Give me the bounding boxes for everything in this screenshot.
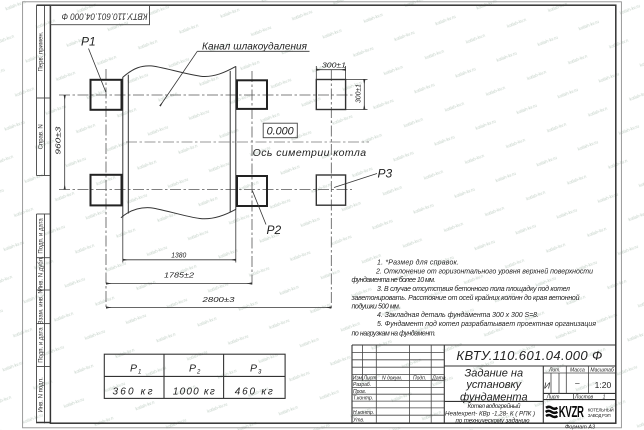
svg-text:Масса: Масса	[570, 367, 585, 373]
svg-text:Т.контр.: Т.контр.	[353, 396, 373, 402]
svg-text:2: 2	[196, 370, 201, 376]
svg-text:Изм.Лист: Изм.Лист	[353, 375, 377, 381]
svg-text:1000 кг: 1000 кг	[173, 386, 215, 397]
svg-text:Взам. инв. N: Взам. инв. N	[38, 289, 44, 324]
svg-text:заветонировать. Расстояние от: заветонировать. Расстояние от осей крайн…	[351, 294, 580, 302]
svg-text:3. В случае отсутствия бетонно: 3. В случае отсутствия бетонного пола пл…	[377, 285, 570, 293]
svg-text:Н.контр.: Н.контр.	[353, 410, 374, 416]
svg-text:Инв. N дубл.: Инв. N дубл.	[38, 256, 44, 291]
svg-text:Котел водогрейный: Котел водогрейный	[468, 403, 522, 410]
svg-text:Лит.: Лит.	[548, 367, 561, 373]
svg-text:Перв. примен.: Перв. примен.	[38, 31, 44, 71]
svg-text:КВТУ.110.601.04.000 Ф: КВТУ.110.601.04.000 Ф	[62, 12, 148, 22]
svg-text:P3: P3	[378, 167, 393, 181]
svg-text:фундамента не более 10 мм.: фундамента не более 10 мм.	[352, 276, 436, 284]
svg-text:P1: P1	[81, 35, 96, 49]
svg-text:установку: установку	[465, 379, 522, 391]
svg-text:КВТУ.110.601.04.000 Ф: КВТУ.110.601.04.000 Ф	[456, 348, 602, 363]
svg-text:4. Закладная деталь фундамента: 4. Закладная деталь фундамента 300 x 300…	[377, 311, 539, 319]
svg-text:Подп. и дата: Подп. и дата	[38, 218, 44, 254]
svg-text:Задание на: Задание на	[465, 368, 524, 380]
svg-text:P: P	[130, 363, 137, 375]
svg-text:Инв. N подл.: Инв. N подл.	[38, 377, 44, 413]
svg-text:по техническому заданию: по техническому заданию	[456, 417, 530, 424]
svg-text:КОТЕЛЬНЫЙ: КОТЕЛЬНЫЙ	[588, 407, 614, 412]
svg-text:Формат А3: Формат А3	[565, 424, 596, 430]
svg-text:Масштаб: Масштаб	[590, 367, 614, 373]
svg-text:Справ. N: Справ. N	[38, 124, 44, 149]
svg-text:по нагрузкам на фундамент.: по нагрузкам на фундамент.	[352, 329, 437, 337]
svg-text:N докум.: N докум.	[382, 375, 402, 381]
svg-text:960±3: 960±3	[53, 126, 62, 155]
svg-text:Листов: Листов	[574, 394, 594, 400]
svg-text:Дата: Дата	[431, 375, 445, 381]
svg-text:Подп. и дата: Подп. и дата	[38, 327, 44, 363]
svg-text:подушки 500 мм.: подушки 500 мм.	[352, 303, 401, 311]
svg-text:P2: P2	[267, 223, 282, 237]
svg-text:300±1: 300±1	[322, 62, 346, 69]
svg-text:фундамента: фундамента	[460, 391, 528, 403]
svg-text:0.000: 0.000	[267, 126, 294, 138]
svg-text:Разраб.: Разраб.	[353, 382, 371, 388]
svg-text:2800±3: 2800±3	[201, 297, 235, 304]
svg-text:1785±2: 1785±2	[164, 273, 194, 280]
svg-text:Пров.: Пров.	[353, 389, 366, 395]
svg-text:KVZR: KVZR	[559, 403, 585, 421]
svg-text:P: P	[250, 363, 257, 375]
svg-text:1380: 1380	[171, 252, 186, 259]
svg-text:1:20: 1:20	[595, 380, 612, 390]
svg-text:Ось симетрии котла: Ось симетрии котла	[253, 147, 367, 159]
svg-text:5. Фундамент под котел разраба: 5. Фундамент под котел разрабатывает про…	[377, 320, 596, 328]
svg-text:И: И	[544, 381, 551, 391]
svg-text:300±1: 300±1	[356, 84, 363, 103]
svg-text:ЗАВОД РЭП: ЗАВОД РЭП	[588, 413, 611, 418]
svg-text:1: 1	[138, 370, 141, 376]
svg-text:P: P	[189, 363, 196, 375]
svg-text:–: –	[575, 379, 580, 388]
svg-text:Подп.: Подп.	[413, 375, 426, 381]
svg-text:Утв.: Утв.	[353, 418, 364, 424]
svg-text:1: 1	[603, 394, 606, 400]
svg-text:Лист: Лист	[546, 394, 560, 400]
svg-text:1. *Размер для справок.: 1. *Размер для справок.	[377, 259, 459, 267]
svg-text:2. Отклонение от горизонтально: 2. Отклонение от горизонтального уровня …	[375, 267, 593, 275]
